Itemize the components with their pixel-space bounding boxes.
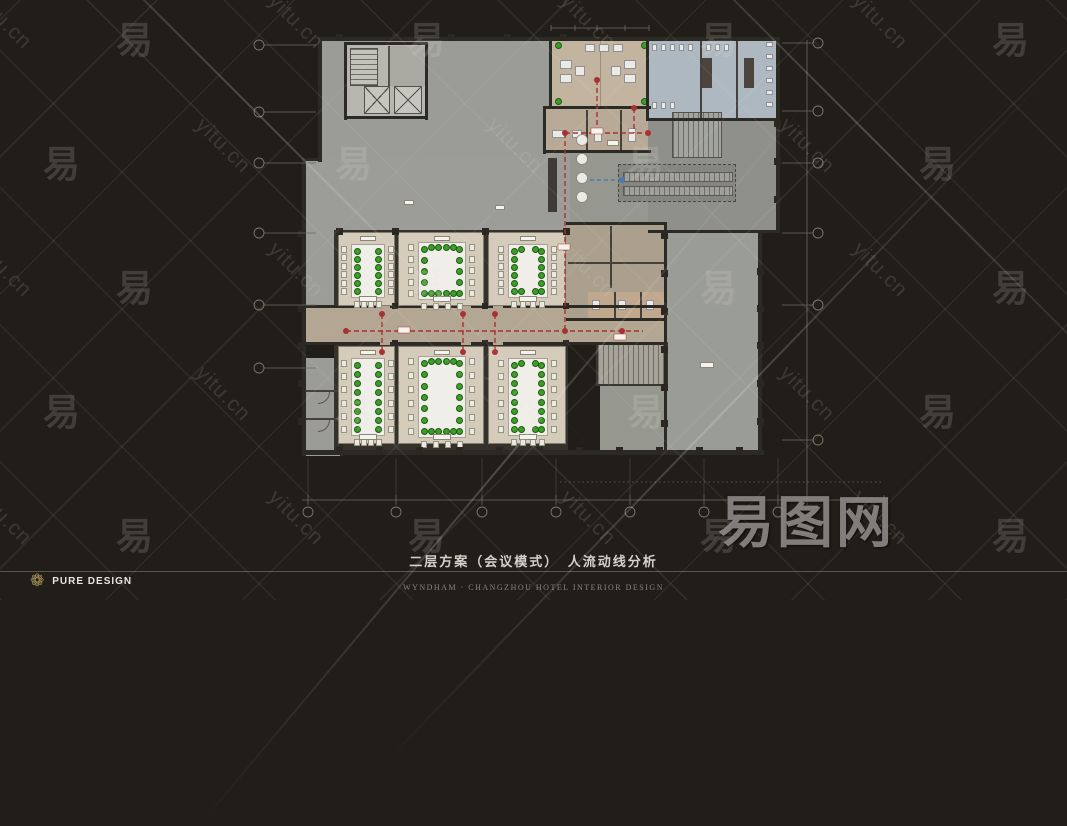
column bbox=[774, 158, 781, 165]
column bbox=[298, 268, 305, 275]
side-chair bbox=[376, 439, 382, 446]
side-chair bbox=[551, 426, 557, 433]
side-chair bbox=[469, 358, 475, 365]
meeting-room bbox=[488, 346, 566, 444]
side-chair bbox=[341, 373, 347, 380]
column bbox=[336, 447, 343, 454]
side-chair bbox=[539, 439, 545, 446]
divider-line bbox=[0, 571, 1067, 572]
green-chair bbox=[450, 428, 457, 435]
green-chair bbox=[354, 399, 361, 406]
green-chair bbox=[456, 290, 463, 297]
side-chair bbox=[408, 279, 414, 286]
duct-shaft bbox=[702, 58, 712, 88]
side-chair bbox=[498, 271, 504, 278]
side-chair bbox=[511, 301, 517, 308]
conference-table bbox=[508, 358, 548, 436]
green-chair bbox=[456, 383, 463, 390]
side-chair bbox=[388, 254, 394, 261]
side-chair bbox=[469, 267, 475, 274]
column bbox=[661, 384, 668, 391]
side-chair bbox=[469, 244, 475, 251]
side-chair bbox=[498, 360, 504, 367]
side-chair bbox=[361, 301, 367, 308]
side-chair bbox=[368, 439, 374, 446]
side-chair bbox=[341, 254, 347, 261]
side-chair bbox=[498, 254, 504, 261]
conference-table bbox=[351, 358, 385, 436]
side-chair bbox=[341, 400, 347, 407]
green-chair bbox=[375, 371, 382, 378]
floor-plan bbox=[0, 0, 1067, 600]
side-chair bbox=[469, 279, 475, 286]
green-chair bbox=[511, 248, 518, 255]
green-chair bbox=[375, 417, 382, 424]
toilet-fixture bbox=[652, 44, 657, 51]
green-chair bbox=[421, 428, 428, 435]
column bbox=[496, 447, 503, 454]
column bbox=[482, 340, 488, 346]
side-chair bbox=[408, 428, 414, 435]
green-chair bbox=[538, 280, 545, 287]
side-chair bbox=[511, 439, 517, 446]
toilet-fixture bbox=[706, 44, 711, 51]
side-chair bbox=[551, 271, 557, 278]
escalator-lane bbox=[623, 186, 733, 196]
column bbox=[536, 447, 543, 454]
side-chair bbox=[341, 263, 347, 270]
toilet-fixture bbox=[688, 44, 693, 51]
green-chair bbox=[375, 280, 382, 287]
side-chair bbox=[498, 413, 504, 420]
green-chair bbox=[538, 272, 545, 279]
green-chair bbox=[511, 426, 518, 433]
green-chair bbox=[375, 426, 382, 433]
column bbox=[563, 303, 569, 309]
green-chair bbox=[354, 380, 361, 387]
room-label-tag bbox=[434, 236, 450, 241]
column bbox=[298, 305, 305, 312]
side-chair bbox=[551, 413, 557, 420]
side-chair bbox=[341, 246, 347, 253]
elevator-shaft bbox=[364, 86, 390, 114]
green-chair bbox=[354, 256, 361, 263]
side-chair bbox=[408, 372, 414, 379]
toilet-fixture bbox=[766, 102, 773, 107]
side-chair bbox=[408, 414, 414, 421]
green-chair bbox=[538, 408, 545, 415]
column bbox=[298, 418, 305, 425]
column bbox=[563, 228, 570, 235]
green-chair bbox=[421, 290, 428, 297]
side-chair bbox=[388, 271, 394, 278]
side-chair bbox=[551, 254, 557, 261]
side-chair bbox=[498, 373, 504, 380]
side-chair bbox=[388, 280, 394, 287]
side-chair bbox=[498, 263, 504, 270]
room-label-tag bbox=[359, 434, 377, 440]
escalator bbox=[618, 164, 736, 202]
green-chair bbox=[532, 360, 539, 367]
green-chair bbox=[421, 360, 428, 367]
green-chair bbox=[375, 389, 382, 396]
green-chair bbox=[375, 264, 382, 271]
side-chair bbox=[341, 271, 347, 278]
green-chair bbox=[443, 358, 450, 365]
area-big-hall-right bbox=[666, 232, 762, 454]
column bbox=[392, 34, 399, 41]
side-chair bbox=[498, 288, 504, 295]
side-chair bbox=[354, 301, 360, 308]
side-chair bbox=[388, 426, 394, 433]
room-label-tag bbox=[433, 434, 451, 440]
green-chair bbox=[375, 408, 382, 415]
green-chair bbox=[450, 244, 457, 251]
column bbox=[392, 228, 399, 235]
plant bbox=[555, 42, 562, 49]
column bbox=[661, 232, 668, 239]
green-chair bbox=[421, 257, 428, 264]
side-chair bbox=[469, 428, 475, 435]
green-chair bbox=[456, 360, 463, 367]
green-chair bbox=[354, 288, 361, 295]
side-chair bbox=[457, 303, 463, 310]
green-chair bbox=[511, 417, 518, 424]
side-chair bbox=[469, 386, 475, 393]
side-chair bbox=[445, 303, 451, 310]
side-chair bbox=[388, 288, 394, 295]
green-chair bbox=[532, 246, 539, 253]
side-chair bbox=[520, 439, 526, 446]
side-chair bbox=[341, 413, 347, 420]
area-core-rooms bbox=[388, 46, 428, 86]
meeting-room bbox=[338, 232, 395, 306]
column bbox=[661, 270, 668, 277]
slide-background: yitu.cn易yitu.cn易yitu.cn易yitu.cn易易yitu.cn… bbox=[0, 0, 1067, 600]
room-label-tag bbox=[519, 296, 537, 302]
side-chair bbox=[551, 360, 557, 367]
side-chair bbox=[368, 301, 374, 308]
green-chair bbox=[375, 248, 382, 255]
green-chair bbox=[375, 256, 382, 263]
green-chair bbox=[421, 279, 428, 286]
meeting-room bbox=[398, 232, 484, 306]
green-chair bbox=[354, 389, 361, 396]
green-chair bbox=[354, 272, 361, 279]
side-chair bbox=[551, 373, 557, 380]
green-chair bbox=[538, 264, 545, 271]
green-chair bbox=[456, 417, 463, 424]
meeting-room bbox=[488, 232, 566, 306]
green-chair bbox=[518, 360, 525, 367]
stairs-bottom bbox=[596, 342, 668, 386]
green-chair bbox=[456, 279, 463, 286]
green-chair bbox=[375, 380, 382, 387]
toilet-fixture bbox=[670, 44, 675, 51]
column bbox=[616, 447, 623, 454]
green-chair bbox=[354, 426, 361, 433]
green-chair bbox=[421, 268, 428, 275]
toilet-fixture bbox=[766, 66, 773, 71]
toilet-fixture bbox=[661, 44, 666, 51]
green-chair bbox=[456, 268, 463, 275]
side-chair bbox=[388, 373, 394, 380]
elevator-shaft bbox=[394, 86, 422, 114]
green-chair bbox=[538, 288, 545, 295]
room-label-tag bbox=[519, 434, 537, 440]
meeting-room bbox=[338, 346, 395, 444]
side-chair bbox=[341, 426, 347, 433]
side-chair bbox=[408, 244, 414, 251]
green-chair bbox=[375, 288, 382, 295]
green-chair bbox=[443, 244, 450, 251]
duct-shaft bbox=[744, 58, 754, 88]
column bbox=[774, 120, 781, 127]
column bbox=[482, 303, 488, 309]
green-chair bbox=[511, 280, 518, 287]
toilet-fixture bbox=[766, 90, 773, 95]
side-chair bbox=[388, 263, 394, 270]
side-chair bbox=[551, 246, 557, 253]
green-chair bbox=[375, 272, 382, 279]
column bbox=[298, 342, 305, 349]
room-label-tag bbox=[359, 296, 377, 302]
green-chair bbox=[354, 408, 361, 415]
column bbox=[392, 340, 398, 346]
green-chair bbox=[421, 417, 428, 424]
side-chair bbox=[551, 280, 557, 287]
column bbox=[661, 308, 668, 315]
column bbox=[392, 303, 398, 309]
side-chair bbox=[388, 400, 394, 407]
green-chair bbox=[538, 256, 545, 263]
green-chair bbox=[518, 426, 525, 433]
toilet-fixture bbox=[724, 44, 729, 51]
green-chair bbox=[421, 383, 428, 390]
side-chair bbox=[408, 386, 414, 393]
side-chair bbox=[388, 246, 394, 253]
toilet-fixture bbox=[670, 102, 675, 109]
room-label-tag bbox=[520, 350, 536, 355]
green-chair bbox=[450, 290, 457, 297]
side-chair bbox=[421, 303, 427, 310]
green-chair bbox=[456, 394, 463, 401]
side-chair bbox=[530, 301, 536, 308]
side-chair bbox=[551, 386, 557, 393]
green-chair bbox=[511, 264, 518, 271]
column bbox=[416, 447, 423, 454]
column bbox=[757, 268, 764, 275]
side-chair bbox=[498, 426, 504, 433]
side-chair bbox=[433, 441, 439, 448]
side-chair bbox=[551, 288, 557, 295]
credit-line: WYNDHAM · CHANGZHOU HOTEL INTERIOR DESIG… bbox=[0, 583, 1067, 592]
green-chair bbox=[538, 417, 545, 424]
column bbox=[736, 447, 743, 454]
side-chair bbox=[469, 372, 475, 379]
side-chair bbox=[408, 358, 414, 365]
side-chair bbox=[341, 360, 347, 367]
green-chair bbox=[354, 417, 361, 424]
side-chair bbox=[408, 290, 414, 297]
room-label-tag bbox=[520, 236, 536, 241]
column bbox=[576, 447, 583, 454]
side-chair bbox=[498, 400, 504, 407]
column bbox=[448, 34, 455, 41]
side-chair bbox=[469, 290, 475, 297]
side-chair bbox=[408, 400, 414, 407]
side-chair bbox=[354, 439, 360, 446]
column bbox=[757, 305, 764, 312]
side-chair bbox=[445, 441, 451, 448]
side-chair bbox=[341, 386, 347, 393]
side-chair bbox=[498, 280, 504, 287]
column bbox=[298, 380, 305, 387]
side-chair bbox=[408, 267, 414, 274]
column bbox=[456, 447, 463, 454]
column bbox=[696, 447, 703, 454]
side-chair bbox=[376, 301, 382, 308]
green-chair bbox=[421, 246, 428, 253]
room-label-tag bbox=[360, 236, 376, 241]
side-chair bbox=[388, 413, 394, 420]
side-chair bbox=[551, 263, 557, 270]
side-chair bbox=[388, 386, 394, 393]
toilet-fixture bbox=[766, 54, 773, 59]
area-restrooms bbox=[648, 38, 778, 118]
slide-title: 二层方案（会议模式） 人流动线分析 bbox=[0, 551, 1067, 570]
green-chair bbox=[511, 272, 518, 279]
green-chair bbox=[511, 408, 518, 415]
green-chair bbox=[354, 264, 361, 271]
green-chair bbox=[456, 246, 463, 253]
side-chair bbox=[361, 439, 367, 446]
column bbox=[504, 34, 511, 41]
green-chair bbox=[511, 399, 518, 406]
green-chair bbox=[518, 288, 525, 295]
green-chair bbox=[354, 248, 361, 255]
core-stairs bbox=[350, 48, 378, 86]
green-chair bbox=[538, 248, 545, 255]
column bbox=[757, 418, 764, 425]
side-chair bbox=[539, 301, 545, 308]
column bbox=[757, 342, 764, 349]
green-chair bbox=[421, 394, 428, 401]
side-chair bbox=[408, 256, 414, 263]
side-chair bbox=[388, 360, 394, 367]
side-chair bbox=[498, 246, 504, 253]
column bbox=[336, 34, 343, 41]
column bbox=[482, 228, 489, 235]
green-chair bbox=[450, 358, 457, 365]
escalator-lane bbox=[623, 172, 733, 182]
side-chair bbox=[469, 414, 475, 421]
column bbox=[757, 380, 764, 387]
green-chair bbox=[532, 426, 539, 433]
green-chair bbox=[511, 362, 518, 369]
green-chair bbox=[354, 280, 361, 287]
side-chair bbox=[551, 400, 557, 407]
toilet-fixture bbox=[679, 44, 684, 51]
side-chair bbox=[520, 301, 526, 308]
green-chair bbox=[354, 362, 361, 369]
green-chair bbox=[456, 257, 463, 264]
side-chair bbox=[469, 256, 475, 263]
column bbox=[336, 228, 343, 235]
column bbox=[560, 34, 567, 41]
green-chair bbox=[538, 399, 545, 406]
meeting-room bbox=[398, 346, 484, 444]
green-chair bbox=[511, 256, 518, 263]
side-chair bbox=[433, 303, 439, 310]
column bbox=[298, 230, 305, 237]
green-chair bbox=[456, 428, 463, 435]
green-chair bbox=[375, 399, 382, 406]
green-chair bbox=[538, 362, 545, 369]
green-chair bbox=[375, 362, 382, 369]
column bbox=[656, 447, 663, 454]
green-chair bbox=[532, 288, 539, 295]
column bbox=[661, 420, 668, 427]
green-chair bbox=[538, 426, 545, 433]
room-label-tag bbox=[360, 350, 376, 355]
plant bbox=[555, 98, 562, 105]
column bbox=[376, 447, 383, 454]
side-chair bbox=[530, 439, 536, 446]
side-chair bbox=[341, 288, 347, 295]
toilet-fixture bbox=[715, 44, 720, 51]
toilet-fixture bbox=[766, 78, 773, 83]
column bbox=[661, 346, 668, 353]
toilet-fixture bbox=[661, 102, 666, 109]
column bbox=[774, 196, 781, 203]
side-chair bbox=[341, 280, 347, 287]
green-chair bbox=[518, 246, 525, 253]
room-label-tag bbox=[433, 296, 451, 302]
green-chair bbox=[428, 358, 435, 365]
green-chair bbox=[354, 371, 361, 378]
yitu-site-logo: 易图网 bbox=[718, 478, 895, 559]
side-chair bbox=[498, 386, 504, 393]
green-chair bbox=[511, 288, 518, 295]
bar-counter bbox=[548, 158, 557, 212]
toilet-fixture bbox=[766, 42, 773, 47]
column bbox=[563, 340, 569, 346]
toilet-fixture bbox=[652, 102, 657, 109]
room-label-tag bbox=[434, 350, 450, 355]
green-chair bbox=[428, 244, 435, 251]
side-chair bbox=[469, 400, 475, 407]
